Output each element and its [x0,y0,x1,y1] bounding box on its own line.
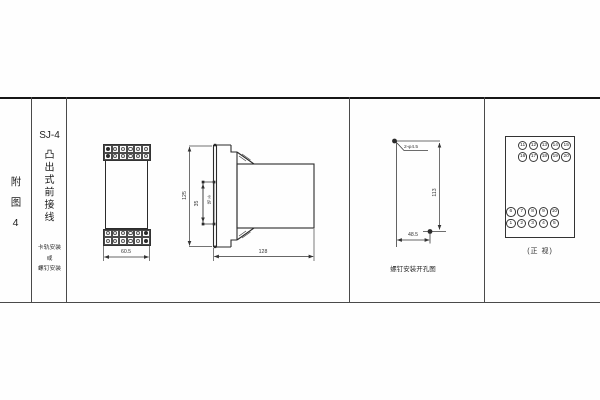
terminal-view-caption: (正 视) [505,246,575,256]
screw-icon [128,231,132,235]
terminal-number: 16 [518,152,528,162]
hole-spacing-vertical-dimension: 113 [433,185,440,200]
screw-icon [144,239,148,243]
screw-icon [144,231,148,235]
screw-icon [113,147,117,151]
terminal-row-6-10: 6 7 8 9 10 [506,207,559,217]
terminal-screw-cell [112,153,120,161]
screw-icon [121,147,125,151]
terminal-screw-cell [134,237,142,245]
side-view-outline [214,145,315,247]
mounting-hole-bottom [428,229,433,234]
screw-icon [128,154,132,158]
terminal-number: 17 [529,152,539,162]
rail-width-dimension: 35 [195,196,202,211]
terminal-screw-cell [134,153,142,161]
screw-icon [144,147,148,151]
terminal-number: 6 [506,207,516,217]
terminal-screw-cell [112,145,120,153]
terminal-number: 15 [561,141,571,151]
screw-icon [128,239,132,243]
terminal-screw-cell [104,237,112,245]
table-divider-3 [349,97,350,302]
terminal-number: 7 [517,207,527,217]
terminal-number: 12 [529,141,539,151]
screw-icon [136,239,140,243]
terminal-number: 3 [528,219,538,229]
front-view-top-terminals [103,144,151,161]
terminal-number: 19 [551,152,561,162]
terminal-screw-cell [119,153,127,161]
terminal-screw-cell [142,237,150,245]
terminal-screw-row [104,145,150,153]
side-view-height-dimension: 125 [183,188,190,203]
mounting-note-line3: 螺钉安装 [33,264,66,275]
terminal-screw-cell [142,153,150,161]
screw-icon [144,154,148,158]
side-view-hatching [239,154,251,238]
terminal-screw-cell [142,145,150,153]
terminal-number: 11 [518,141,528,151]
terminal-screw-cell [119,237,127,245]
terminal-screw-cell [112,237,120,245]
terminal-screw-cell [134,230,142,238]
figure-number-label: 附图4 [10,176,21,239]
table-divider-2 [66,97,67,302]
terminal-screw-cell [104,230,112,238]
terminal-number: 20 [561,152,571,162]
front-view-body [105,159,148,230]
screw-icon [136,154,140,158]
screw-icon [136,231,140,235]
hole-spacing-horizontal-dimension: 48.5 [398,233,428,239]
terminal-screw-cell [134,145,142,153]
model-label: SJ-4 [33,130,66,141]
terminal-row-1-5: 1 2 3 4 5 [506,219,559,229]
screw-icon [121,154,125,158]
terminal-screw-row [104,153,150,161]
terminal-number: 4 [539,219,549,229]
screw-icon [136,147,140,151]
terminal-screw-cell [127,153,135,161]
mount-type-label: 凸出式前接线 [42,149,52,224]
terminal-number: 13 [540,141,550,151]
mounting-note-line2: 或 [33,254,66,265]
terminal-number: 2 [517,219,527,229]
terminal-number: 9 [539,207,549,217]
table-top-border [0,97,600,99]
screw-icon [121,231,125,235]
screw-icon [106,154,110,158]
terminal-screw-cell [112,230,120,238]
technical-drawing-sheet: 附图4 SJ-4 凸出式前接线 卡轨安装 或 螺钉安装 60.5 125 35 … [0,0,600,400]
screw-icon [106,239,110,243]
terminal-screw-row [104,230,150,238]
mounting-note: 卡轨安装 或 螺钉安装 [33,243,66,275]
front-view-width-dimension: 60.5 [107,250,145,256]
terminal-number: 8 [528,207,538,217]
screw-icon [113,239,117,243]
terminal-screw-cell [104,153,112,161]
terminal-screw-cell [127,145,135,153]
screw-icon [106,231,110,235]
screw-icon [128,147,132,151]
side-view-depth-dimension: 128 [243,250,283,256]
table-divider-1 [31,97,32,302]
terminal-screw-row [104,237,150,245]
terminal-screw-cell [142,230,150,238]
table-bottom-border [0,302,600,303]
table-divider-4 [484,97,485,302]
terminal-screw-cell [127,237,135,245]
terminal-screw-cell [119,230,127,238]
screw-icon [113,231,117,235]
terminal-numbers-bottom-group: 6 7 8 9 10 1 2 3 4 5 [506,207,566,228]
terminal-number: 18 [540,152,550,162]
rail-label: 卡轨 [207,195,214,204]
mounting-hole-top [392,139,397,144]
terminal-number: 14 [551,141,561,151]
screw-icon [106,147,110,151]
terminal-row-11-15: 11 12 13 14 15 [518,141,571,151]
terminal-screw-cell [104,145,112,153]
hole-diameter-label: 2-φ4.5 [404,145,430,150]
mounting-note-line1: 卡轨安装 [33,243,66,254]
drill-view-caption: 螺钉安装开孔图 [370,263,456,273]
screw-icon [121,239,125,243]
terminal-row-16-20: 16 17 18 19 20 [518,152,571,162]
terminal-number: 1 [506,219,516,229]
terminal-screw-cell [127,230,135,238]
terminal-numbers-top-group: 11 12 13 14 15 16 17 18 19 20 [511,141,571,162]
terminal-number: 5 [550,219,560,229]
front-view-bottom-terminals [103,229,151,246]
screw-icon [113,154,117,158]
terminal-screw-cell [119,145,127,153]
terminal-number: 10 [550,207,560,217]
